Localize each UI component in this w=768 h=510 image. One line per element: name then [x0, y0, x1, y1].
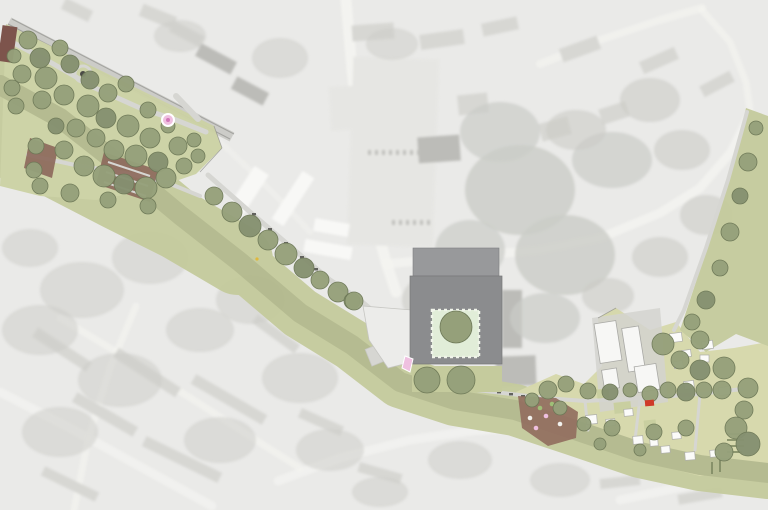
garden-shed — [661, 446, 671, 454]
carousel-center — [166, 118, 170, 122]
parked-car — [427, 220, 430, 225]
bench — [314, 268, 318, 270]
tree-canopy — [713, 357, 735, 379]
aerial-foliage — [654, 130, 710, 170]
tree-canopy — [32, 178, 48, 194]
tree-canopy — [114, 174, 134, 194]
tree-canopy — [691, 331, 709, 349]
tree-canopy — [749, 121, 763, 135]
site-plan-figure — [0, 0, 768, 510]
tree-canopy — [721, 223, 739, 241]
garden-shed — [633, 436, 644, 445]
aerial-foliage — [582, 278, 634, 314]
tree-canopy — [239, 215, 261, 237]
parked-car — [396, 150, 399, 155]
tree-canopy — [634, 444, 646, 456]
tree-canopy — [8, 98, 24, 114]
tree-canopy — [623, 383, 637, 397]
tree-canopy — [99, 84, 117, 102]
aerial-foliage — [530, 463, 590, 497]
tree-canopy — [48, 118, 64, 134]
parked-car — [413, 220, 416, 225]
tree-canopy — [81, 71, 99, 89]
parked-car — [389, 150, 392, 155]
tree-canopy — [61, 55, 79, 73]
tree-canopy — [713, 381, 731, 399]
aerial-foliage — [352, 477, 408, 507]
cloister-annex — [413, 248, 499, 276]
aerial-foliage — [620, 78, 680, 122]
tree-canopy — [118, 76, 134, 92]
tree-canopy — [736, 432, 760, 456]
tree-canopy — [187, 133, 201, 147]
tree-canopy — [345, 292, 363, 310]
tree-canopy — [87, 129, 105, 147]
aerial-foliage — [22, 407, 98, 457]
tree-canopy — [678, 420, 694, 436]
tree-canopy — [652, 333, 674, 355]
play-equipment-dot — [558, 422, 563, 427]
tree-canopy — [690, 360, 710, 380]
tree-canopy — [67, 119, 85, 137]
tree-canopy — [13, 65, 31, 83]
tree-canopy — [77, 95, 99, 117]
courtyard-tree — [440, 311, 472, 343]
tree-canopy — [715, 443, 733, 461]
masterplan-svg — [0, 0, 768, 510]
parked-car — [403, 150, 406, 155]
aerial-foliage — [252, 38, 308, 78]
tree-canopy — [30, 48, 50, 68]
parked-car — [368, 150, 371, 155]
aerial-foliage — [460, 102, 540, 162]
parked-car — [375, 150, 378, 155]
tree-canopy — [258, 230, 278, 250]
aerial-building — [329, 85, 367, 131]
tree-canopy — [176, 158, 192, 174]
tree-canopy — [697, 291, 715, 309]
tree-canopy — [671, 351, 689, 369]
tree-canopy — [684, 314, 700, 330]
tree-canopy — [604, 420, 620, 436]
tree-canopy — [74, 156, 94, 176]
tree-canopy — [191, 149, 205, 163]
red-kiosk — [645, 400, 654, 407]
garden-shed — [685, 452, 696, 461]
tree-canopy — [140, 102, 156, 118]
play-equipment-dot — [528, 416, 533, 421]
aerial-foliage — [154, 20, 206, 52]
tree-canopy — [577, 417, 591, 431]
aerial-foliage — [510, 293, 580, 343]
aerial-foliage — [2, 305, 78, 355]
tree-canopy — [222, 202, 242, 222]
tree-canopy — [594, 438, 606, 450]
tree-canopy — [156, 168, 176, 188]
aerial-foliage — [366, 28, 418, 60]
tree-canopy — [553, 401, 567, 415]
garden-shed — [624, 409, 634, 417]
aerial-foliage — [2, 229, 58, 267]
aerial-foliage — [428, 441, 492, 479]
parked-car — [410, 150, 413, 155]
tree-canopy — [117, 115, 139, 137]
aerial-foliage — [78, 353, 162, 407]
play-equipment-dot — [534, 426, 539, 431]
parked-car — [417, 150, 420, 155]
tree-canopy — [19, 31, 37, 49]
tree-canopy — [712, 260, 728, 276]
tree-canopy — [602, 384, 618, 400]
tree-canopy — [275, 243, 297, 265]
tree-canopy — [125, 145, 147, 167]
tree-canopy — [580, 383, 596, 399]
tree-canopy — [294, 258, 314, 278]
tree-canopy — [696, 382, 712, 398]
tree-canopy — [642, 386, 658, 402]
tree-canopy — [135, 177, 157, 199]
tree-canopy — [539, 381, 557, 399]
aerial-foliage — [546, 110, 606, 150]
tree-canopy — [100, 192, 116, 208]
tree-canopy — [660, 382, 676, 398]
bench — [509, 393, 513, 395]
tree-canopy — [26, 162, 42, 178]
aerial-foliage — [632, 237, 688, 277]
tree-canopy — [93, 165, 115, 187]
tree-canopy — [525, 393, 539, 407]
tree-canopy — [96, 108, 116, 128]
tree-canopy — [447, 366, 475, 394]
tree-canopy — [54, 85, 74, 105]
aerial-building — [417, 135, 461, 164]
tree-canopy — [104, 140, 124, 160]
aerial-foliage — [166, 308, 234, 352]
tree-canopy — [7, 49, 21, 63]
tree-canopy — [169, 137, 187, 155]
tree-canopy — [414, 367, 440, 393]
tree-canopy — [140, 198, 156, 214]
parked-car — [420, 220, 423, 225]
tree-canopy — [55, 141, 73, 159]
aerial-foliage — [296, 429, 364, 471]
tree-canopy — [738, 378, 758, 398]
tree-canopy — [739, 153, 757, 171]
parked-car — [406, 220, 409, 225]
play-equipment-dot — [544, 414, 549, 419]
tree-canopy — [558, 376, 574, 392]
parked-car — [399, 220, 402, 225]
parked-car — [382, 150, 385, 155]
aerial-foliage — [184, 417, 256, 463]
tree-canopy — [28, 138, 44, 154]
tree-canopy — [646, 424, 662, 440]
tree-canopy — [205, 187, 223, 205]
marker-dot — [255, 257, 258, 260]
tree-canopy — [735, 401, 753, 419]
tree-canopy — [35, 67, 57, 89]
tree-canopy — [677, 383, 695, 401]
tree-canopy — [4, 80, 20, 96]
tree-canopy — [61, 184, 79, 202]
play-equipment-dot — [538, 406, 543, 411]
tree-canopy — [311, 271, 329, 289]
aerial-foliage — [262, 353, 338, 403]
tree-canopy — [33, 91, 51, 109]
tree-canopy — [52, 40, 68, 56]
parked-car — [392, 220, 395, 225]
tree-canopy — [140, 128, 160, 148]
tree-canopy — [732, 188, 748, 204]
